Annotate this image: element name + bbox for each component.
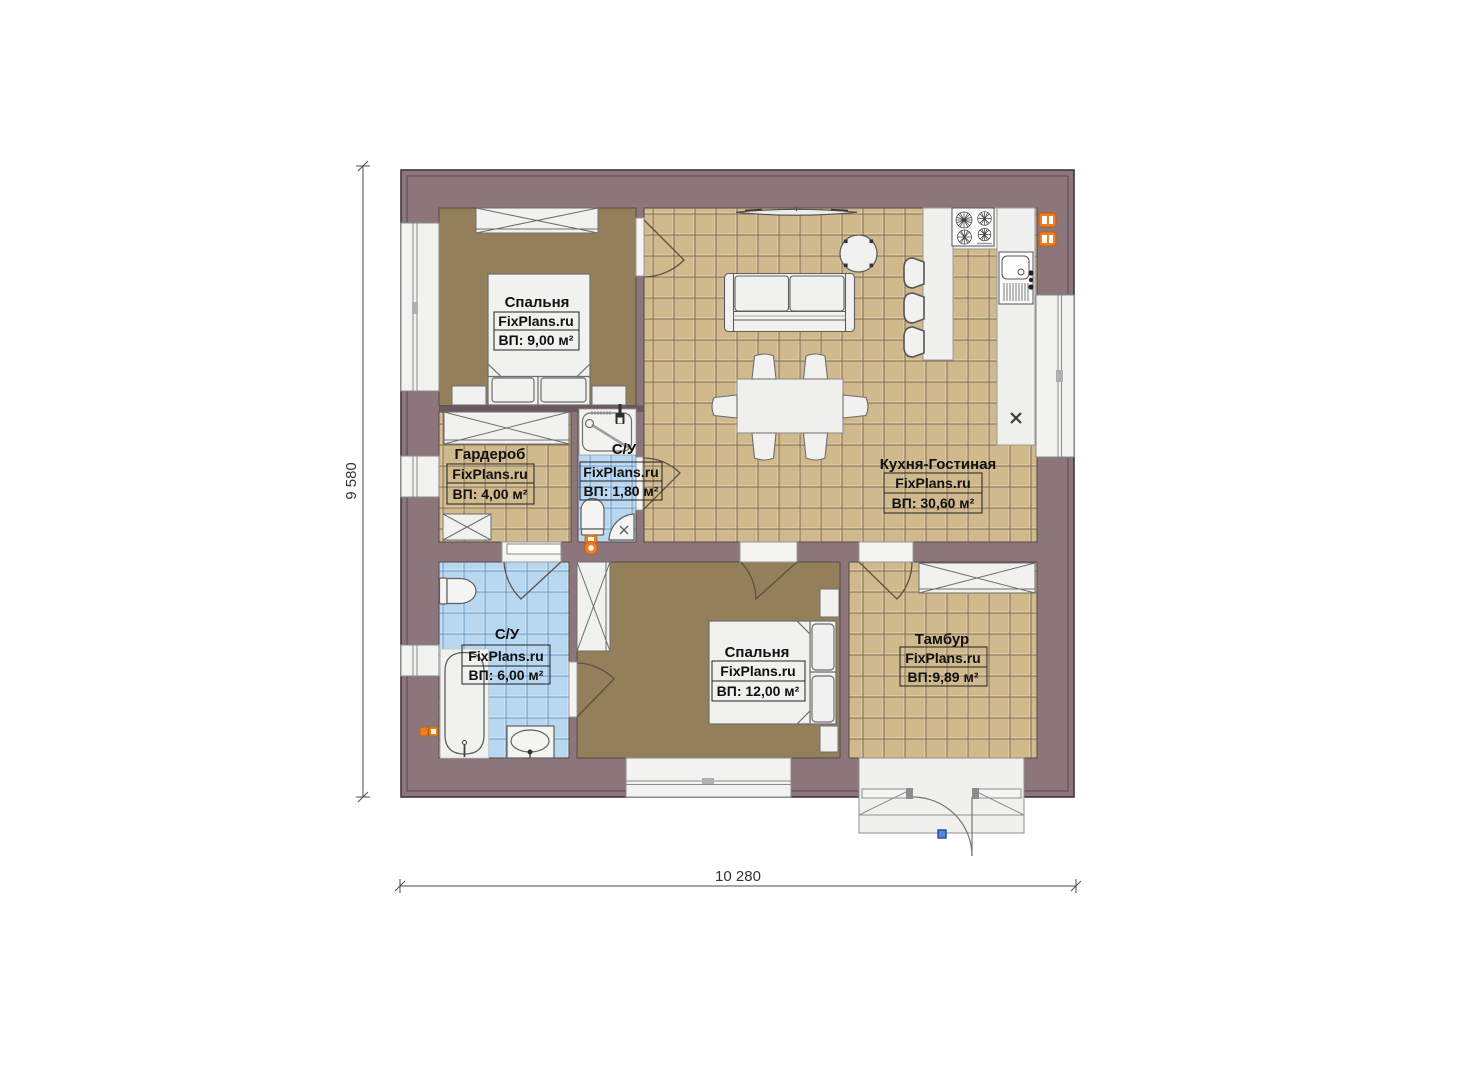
svg-text:С/У: С/У <box>612 441 637 458</box>
svg-text:ВП: 6,00 м²: ВП: 6,00 м² <box>469 667 544 683</box>
svg-text:FixPlans.ru: FixPlans.ru <box>452 466 527 482</box>
svg-text:Гардероб: Гардероб <box>455 446 526 463</box>
svg-text:10 280: 10 280 <box>715 868 761 885</box>
svg-text:FixPlans.ru: FixPlans.ru <box>720 663 795 679</box>
svg-text:ВП: 1,80 м²: ВП: 1,80 м² <box>584 483 659 499</box>
svg-text:9 580: 9 580 <box>343 462 360 500</box>
svg-text:FixPlans.ru: FixPlans.ru <box>468 648 543 664</box>
svg-text:Спальня: Спальня <box>725 644 790 661</box>
svg-text:FixPlans.ru: FixPlans.ru <box>895 475 970 491</box>
svg-text:FixPlans.ru: FixPlans.ru <box>498 313 573 329</box>
svg-text:Тамбур: Тамбур <box>915 631 969 648</box>
svg-text:FixPlans.ru: FixPlans.ru <box>905 650 980 666</box>
svg-text:ВП: 12,00 м²: ВП: 12,00 м² <box>717 683 800 699</box>
svg-text:ВП:9,89 м²: ВП:9,89 м² <box>908 669 979 685</box>
svg-text:ВП: 30,60 м²: ВП: 30,60 м² <box>892 495 975 511</box>
svg-text:ВП: 9,00 м²: ВП: 9,00 м² <box>499 332 574 348</box>
svg-text:Спальня: Спальня <box>505 294 570 311</box>
svg-text:ВП: 4,00 м²: ВП: 4,00 м² <box>453 486 528 502</box>
svg-text:FixPlans.ru: FixPlans.ru <box>583 464 658 480</box>
svg-text:С/У: С/У <box>495 626 520 643</box>
svg-text:Кухня-Гостиная: Кухня-Гостиная <box>880 456 997 473</box>
